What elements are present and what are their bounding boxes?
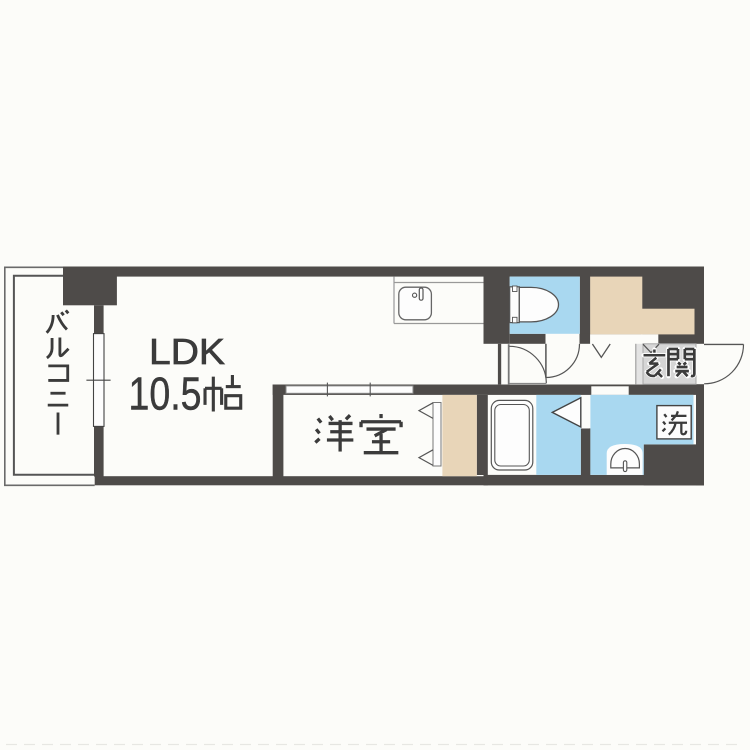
svg-text:10.5: 10.5 [129,368,202,420]
svg-text:LDK: LDK [149,331,225,372]
